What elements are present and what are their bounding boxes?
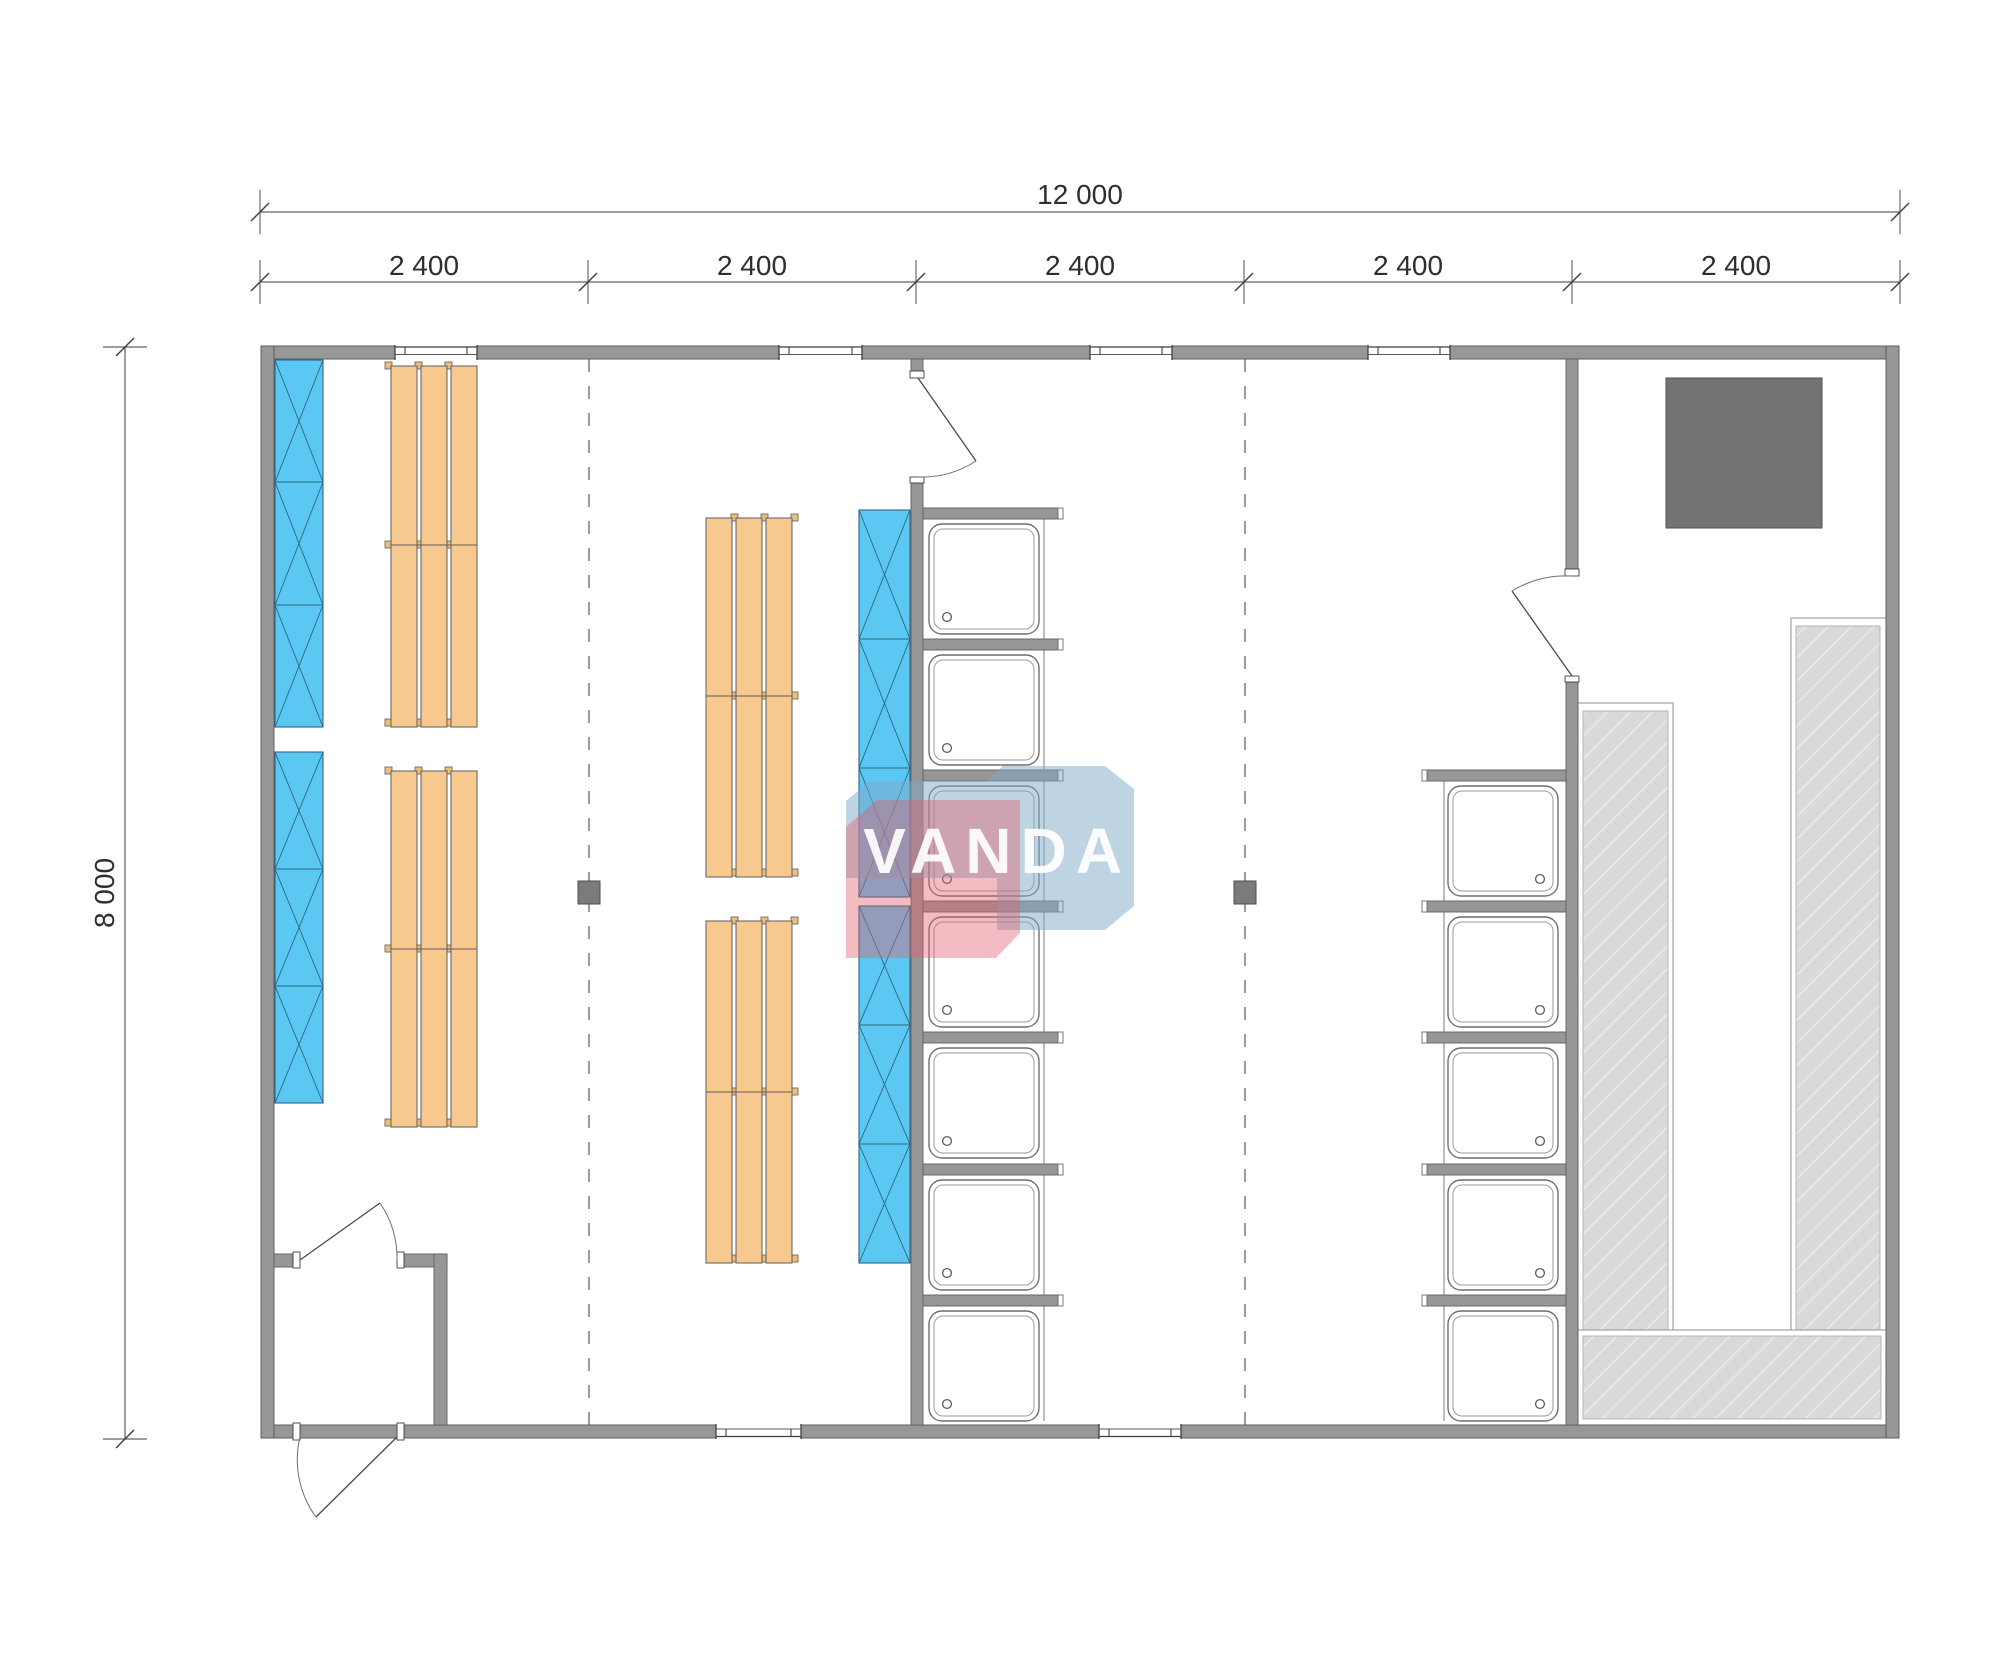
svg-text:2 400: 2 400 <box>1045 250 1115 281</box>
svg-text:VANDA: VANDA <box>863 815 1131 887</box>
svg-text:2 400: 2 400 <box>389 250 459 281</box>
svg-text:8 000: 8 000 <box>89 858 120 928</box>
svg-text:2 400: 2 400 <box>1373 250 1443 281</box>
svg-text:2 400: 2 400 <box>1701 250 1771 281</box>
svg-text:12 000: 12 000 <box>1037 179 1123 210</box>
svg-text:2 400: 2 400 <box>717 250 787 281</box>
